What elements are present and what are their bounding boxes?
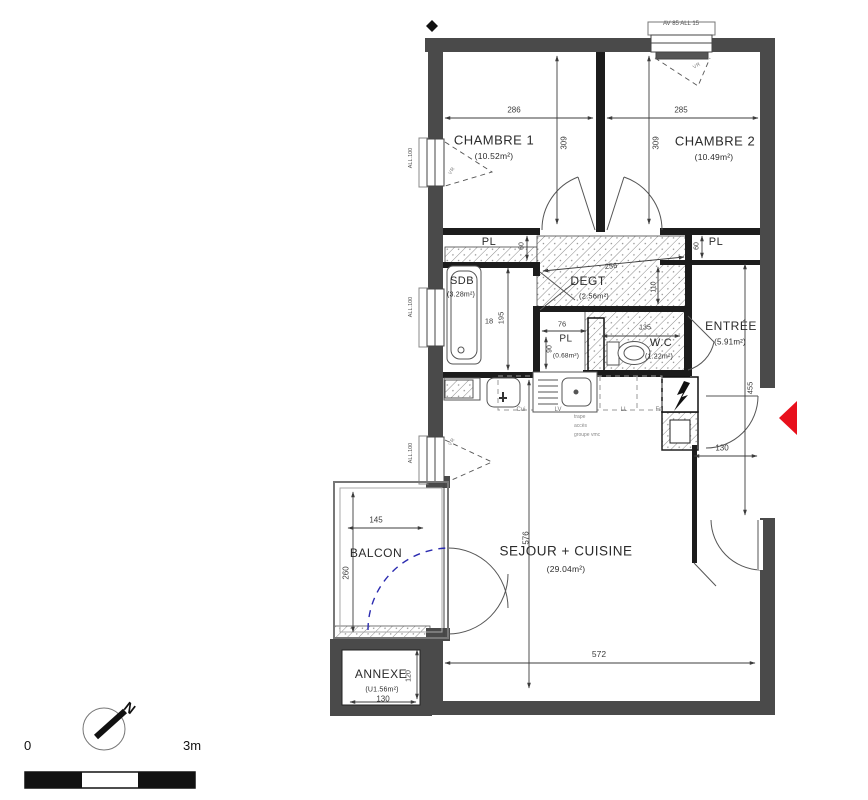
room-label-sdb: SDB [450, 275, 474, 287]
top-note: AV 85 ALL 15 [663, 21, 699, 27]
balcony-outline [334, 482, 450, 638]
room-label-chambre2: CHAMBRE 2 [675, 134, 755, 149]
dim-degt-width: 256 [604, 261, 617, 271]
note-trape: trape [574, 414, 585, 420]
window-label-all100-3: ALL.100 [408, 443, 414, 464]
room-label-balcon: BALCON [350, 546, 402, 560]
dim-entree-width: 130 [715, 444, 728, 453]
dim-degt-height: 110 [651, 281, 658, 292]
dim-chambre2-height: 309 [652, 136, 661, 149]
balcony-door-swing [368, 548, 450, 630]
appliance-label-ll: LL [621, 407, 628, 413]
entrance-arrow-icon [779, 401, 797, 435]
dim-chambre2-width: 285 [674, 106, 687, 115]
room-area-wc: (1.22m²) [645, 354, 673, 361]
room-area-degt: (2.56m²) [579, 292, 609, 301]
dim-wc-width: 135 [639, 325, 651, 332]
room-area-sejour: (29.04m²) [547, 564, 586, 574]
scale-zero-label: 0 [24, 738, 31, 753]
room-area-pl-small: (0.68m²) [553, 353, 579, 360]
room-label-annexe: ANNEXE [355, 667, 407, 681]
appliance-label-lv: LV [555, 407, 562, 413]
scale-max-label: 3m [183, 738, 201, 753]
room-label-sejour: SEJOUR + CUISINE [500, 544, 633, 559]
floor-plan-canvas: AV 85 ALL 15 CHAMBRE 1 (10.52m²) CHAMBRE… [0, 0, 868, 800]
dim-annexe-width: 130 [376, 695, 389, 704]
toilet-symbol [607, 342, 619, 365]
window-label-all100-2: ALL.100 [408, 297, 414, 318]
dim-pl-right: 60 [694, 242, 701, 250]
room-label-pl-left: PL [482, 236, 496, 248]
dim-balcon-width: 145 [369, 516, 382, 525]
room-label-pl-right: PL [709, 236, 723, 248]
room-area-chambre1: (10.52m²) [475, 151, 514, 161]
dim-annexe-height: 120 [406, 670, 413, 682]
dim-sejour-width: 572 [592, 649, 606, 659]
dim-chambre1-width: 286 [507, 106, 520, 115]
room-label-pl-small: PL [559, 334, 572, 345]
dim-sejour-height: 576 [522, 531, 531, 544]
room-area-entree: (5.91m²) [714, 338, 746, 347]
note-groupe-vmc: groupe vmc [574, 432, 600, 438]
interior-walls [443, 52, 760, 563]
dim-sdb-18: 18 [485, 317, 493, 326]
hatch-zones [334, 236, 698, 639]
dim-balcon-height: 260 [342, 566, 351, 579]
north-needle-icon [96, 711, 125, 737]
dim-pl-small-width: 76 [558, 320, 566, 329]
dim-sdb-height: 195 [497, 312, 506, 325]
appliance-label-cui: Cui [516, 407, 525, 413]
dim-pl-left: 60 [519, 242, 526, 250]
room-area-annexe: (U1.56m²) [365, 687, 398, 694]
note-acces: accès [574, 423, 587, 429]
room-area-chambre2: (10.49m²) [695, 152, 734, 162]
dim-entree-height: 455 [746, 382, 755, 395]
room-label-degt: DEGT [570, 274, 605, 288]
room-area-sdb: (3.28m²) [447, 292, 475, 299]
floor-plan-drawing [0, 0, 868, 800]
dim-chambre1-height: 309 [560, 136, 569, 149]
compass-icon [83, 708, 125, 750]
room-label-entree: ENTRÉE [705, 319, 757, 333]
scale-bar [25, 772, 195, 788]
room-label-wc: W.C [650, 337, 672, 349]
appliance-label-fri: Fri [656, 407, 663, 413]
room-label-chambre1: CHAMBRE 1 [454, 133, 534, 148]
survey-marker-icon [426, 20, 438, 32]
window-label-all100-1: ALL.100 [408, 148, 414, 169]
